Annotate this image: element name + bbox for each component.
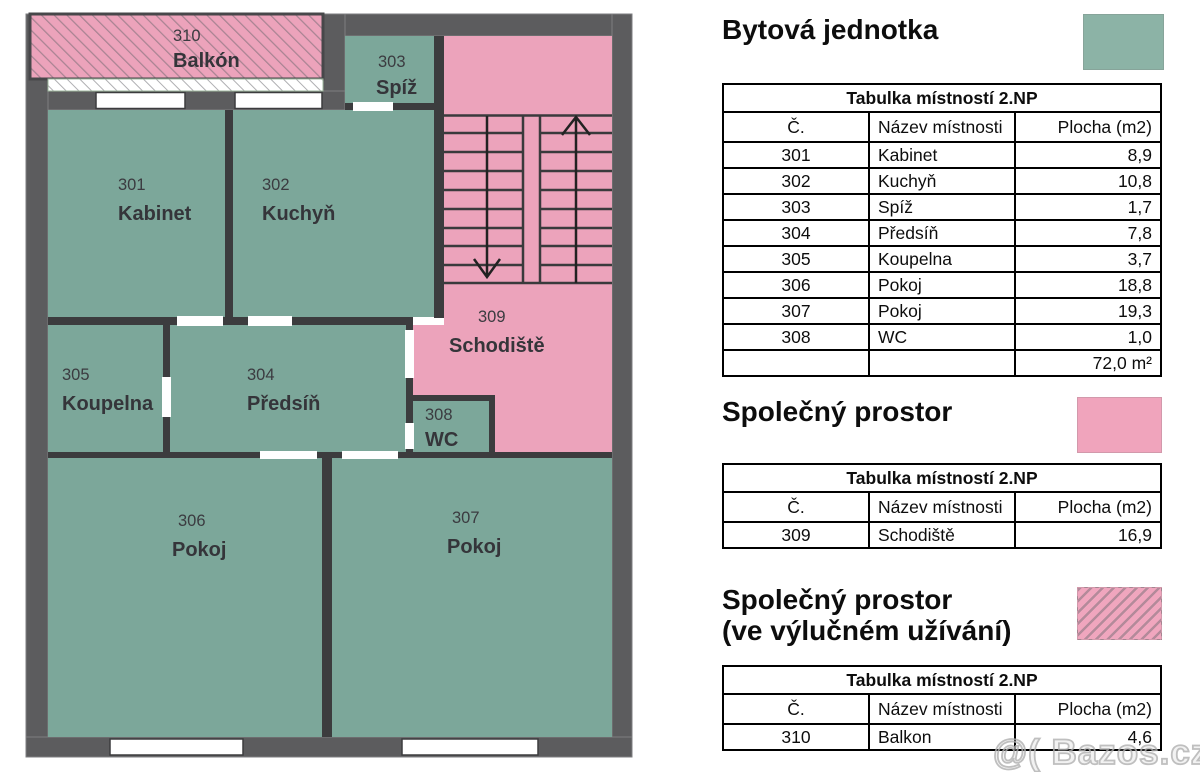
label-308-number: 308: [425, 406, 453, 424]
wall-wc-top: [406, 395, 495, 401]
wall-301-302: [225, 110, 233, 318]
balcony-edge-band: [48, 79, 323, 91]
table-header-row: Č. Název místnosti Plocha (m2): [723, 694, 1161, 724]
label-302-name: Kuchyň: [262, 203, 335, 225]
col-header-area: Plocha (m2): [1015, 492, 1161, 522]
label-305-number: 305: [62, 366, 90, 384]
table-header-row: Č. Název místnosti Plocha (m2): [723, 492, 1161, 522]
window-bottom-1: [110, 739, 243, 755]
col-header-name: Název místnosti: [869, 112, 1015, 142]
door-kabinet: [177, 316, 223, 326]
table-row: 306 Pokoj 18,8: [723, 272, 1161, 298]
label-306-number: 306: [178, 512, 206, 530]
door-pokoj306: [260, 451, 317, 459]
table-header-row: Č. Název místnosti Plocha (m2): [723, 112, 1161, 142]
room-306-pokoj: [48, 458, 322, 737]
table-row: 304 Předsíň 7,8: [723, 220, 1161, 246]
table-title: Tabulka místností 2.NP: [723, 84, 1161, 112]
table-title: Tabulka místností 2.NP: [723, 464, 1161, 492]
label-305-name: Koupelna: [62, 393, 154, 415]
door-wc: [405, 423, 414, 449]
legend-swatch-unit: [1083, 14, 1164, 70]
label-304-name: Předsíň: [247, 393, 320, 415]
col-header-number: Č.: [723, 694, 869, 724]
legend-swatch-common-exclusive: [1077, 587, 1162, 640]
table-row: 303 Spíž 1,7: [723, 194, 1161, 220]
label-307-name: Pokoj: [447, 536, 501, 558]
col-header-number: Č.: [723, 492, 869, 522]
col-header-name: Název místnosti: [869, 694, 1015, 724]
legend-title-common: Společný prostor: [722, 396, 952, 427]
legend-title-line1: Společný prostor: [722, 584, 952, 615]
wall-row2-row3: [48, 317, 413, 325]
table-title-row: Tabulka místností 2.NP: [723, 464, 1161, 492]
label-301-name: Kabinet: [118, 203, 192, 225]
legend-title-line2: (ve výlučném užívání): [722, 615, 1011, 646]
label-303-number: 303: [378, 53, 406, 71]
wall-right: [612, 14, 632, 757]
wall-306-307: [322, 458, 332, 737]
label-309-number: 309: [478, 308, 506, 326]
door-schodiste: [405, 330, 414, 378]
room-307-pokoj: [332, 458, 612, 737]
room-309-schodiste-main: [444, 36, 612, 452]
total-area: 72,0 m²: [1015, 350, 1161, 376]
table-row: 305 Koupelna 3,7: [723, 246, 1161, 272]
legend-swatch-common: [1077, 397, 1162, 453]
door-kuchyn: [248, 316, 292, 326]
bazos-watermark: @( Bazos.cz: [993, 733, 1200, 773]
table-title: Tabulka místností 2.NP: [723, 666, 1161, 694]
wall-wc-right: [489, 395, 495, 452]
label-308-name: WC: [425, 429, 458, 451]
door-spiz: [353, 102, 393, 111]
label-310-name: Balkón: [173, 50, 240, 72]
label-302-number: 302: [262, 176, 290, 194]
label-304-number: 304: [247, 366, 275, 384]
table-unit-rooms: Tabulka místností 2.NP Č. Název místnost…: [722, 83, 1162, 377]
room-305-koupelna: [48, 325, 163, 452]
col-header-number: Č.: [723, 112, 869, 142]
window-top-1: [96, 93, 185, 109]
label-309-name: Schodiště: [449, 335, 545, 357]
window-top-2: [235, 93, 322, 109]
table-title-row: Tabulka místností 2.NP: [723, 666, 1161, 694]
label-310-number: 310: [173, 27, 201, 45]
label-303-name: Spíž: [376, 77, 417, 99]
col-header-area: Plocha (m2): [1015, 694, 1161, 724]
table-row: 301 Kabinet 8,9: [723, 142, 1161, 168]
wall-left: [26, 14, 48, 757]
table-common-rooms: Tabulka místností 2.NP Č. Název místnost…: [722, 463, 1162, 549]
col-header-name: Název místnosti: [869, 492, 1015, 522]
legend-title-unit: Bytová jednotka: [722, 14, 938, 45]
label-307-number: 307: [452, 509, 480, 527]
floor-plan: 310 Balkón 303 Spíž 301 Kabinet 302 Kuch…: [0, 0, 660, 783]
room-304-predsin: [170, 325, 406, 452]
legend-title-common-exclusive: Společný prostor(ve výlučném užívání): [722, 584, 1011, 646]
table-row: 307 Pokoj 19,3: [723, 298, 1161, 324]
wall-row3-row4: [48, 452, 612, 458]
table-total-row: 72,0 m²: [723, 350, 1161, 376]
table-row: 302 Kuchyň 10,8: [723, 168, 1161, 194]
door-pokoj307: [342, 451, 398, 459]
col-header-area: Plocha (m2): [1015, 112, 1161, 142]
label-301-number: 301: [118, 176, 146, 194]
door-koupelna: [162, 377, 171, 417]
label-306-name: Pokoj: [172, 539, 226, 561]
wall-top: [323, 14, 632, 36]
table-row: 308 WC 1,0: [723, 324, 1161, 350]
window-bottom-2: [402, 739, 538, 755]
wall-kuchyn-stairs: [434, 36, 444, 318]
table-title-row: Tabulka místností 2.NP: [723, 84, 1161, 112]
table-row: 309 Schodiště 16,9: [723, 522, 1161, 548]
